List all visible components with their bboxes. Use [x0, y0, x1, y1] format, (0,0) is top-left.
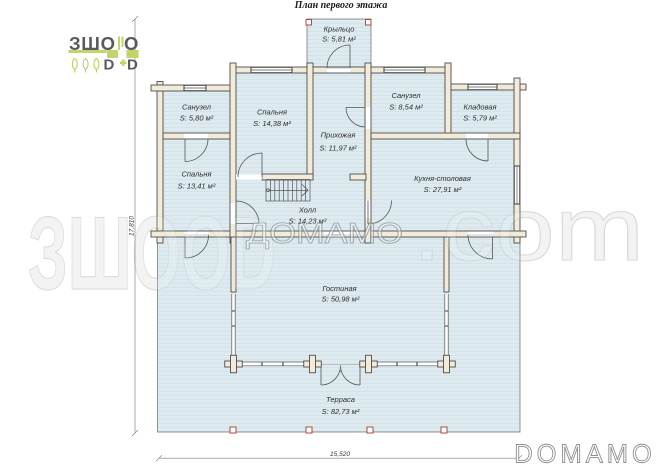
svg-text:Спальня: Спальня — [257, 108, 287, 117]
svg-text:Холл: Холл — [298, 206, 317, 215]
svg-text:S: 5,81 м²: S: 5,81 м² — [322, 35, 356, 44]
svg-text:Кладовая: Кладовая — [463, 103, 496, 112]
svg-text:Кухня-столовая: Кухня-столовая — [414, 174, 471, 183]
svg-text:S: 27,91 м²: S: 27,91 м² — [424, 185, 462, 194]
svg-text:Терраса: Терраса — [326, 395, 355, 404]
svg-text:ЗШООD: ЗШООD — [28, 196, 276, 312]
svg-text:S: 13,41 м²: S: 13,41 м² — [178, 182, 216, 191]
svg-text:.com: .com — [412, 180, 644, 280]
svg-text:S: 11,97 м²: S: 11,97 м² — [319, 144, 357, 153]
svg-text:15,520: 15,520 — [330, 451, 350, 458]
svg-text:D: D — [127, 57, 138, 74]
svg-text:S: 14,23 м²: S: 14,23 м² — [289, 217, 327, 226]
svg-text:D: D — [104, 57, 115, 74]
svg-text:Спальня: Спальня — [182, 170, 212, 179]
svg-text:Санузел: Санузел — [182, 103, 212, 112]
svg-text:План первого этажа: План первого этажа — [294, 0, 388, 11]
svg-text:S: 14,38 м²: S: 14,38 м² — [253, 119, 291, 128]
svg-text:S: 50,98 м²: S: 50,98 м² — [322, 294, 360, 303]
svg-text:Прихожая: Прихожая — [321, 131, 356, 140]
svg-text:S: 8,54 м²: S: 8,54 м² — [389, 103, 423, 112]
svg-text:S: 5,79 м²: S: 5,79 м² — [463, 114, 497, 123]
svg-text:17,810: 17,810 — [129, 216, 136, 236]
svg-text:Санузел: Санузел — [391, 91, 421, 100]
svg-text:Крыльцо: Крыльцо — [324, 25, 355, 34]
svg-text:DOMAMO: DOMAMO — [514, 441, 656, 469]
svg-text:Гостиная: Гостиная — [322, 284, 356, 293]
svg-text:S: 5,80 м²: S: 5,80 м² — [180, 114, 214, 123]
svg-text:S: 82,73 м²: S: 82,73 м² — [322, 407, 360, 416]
